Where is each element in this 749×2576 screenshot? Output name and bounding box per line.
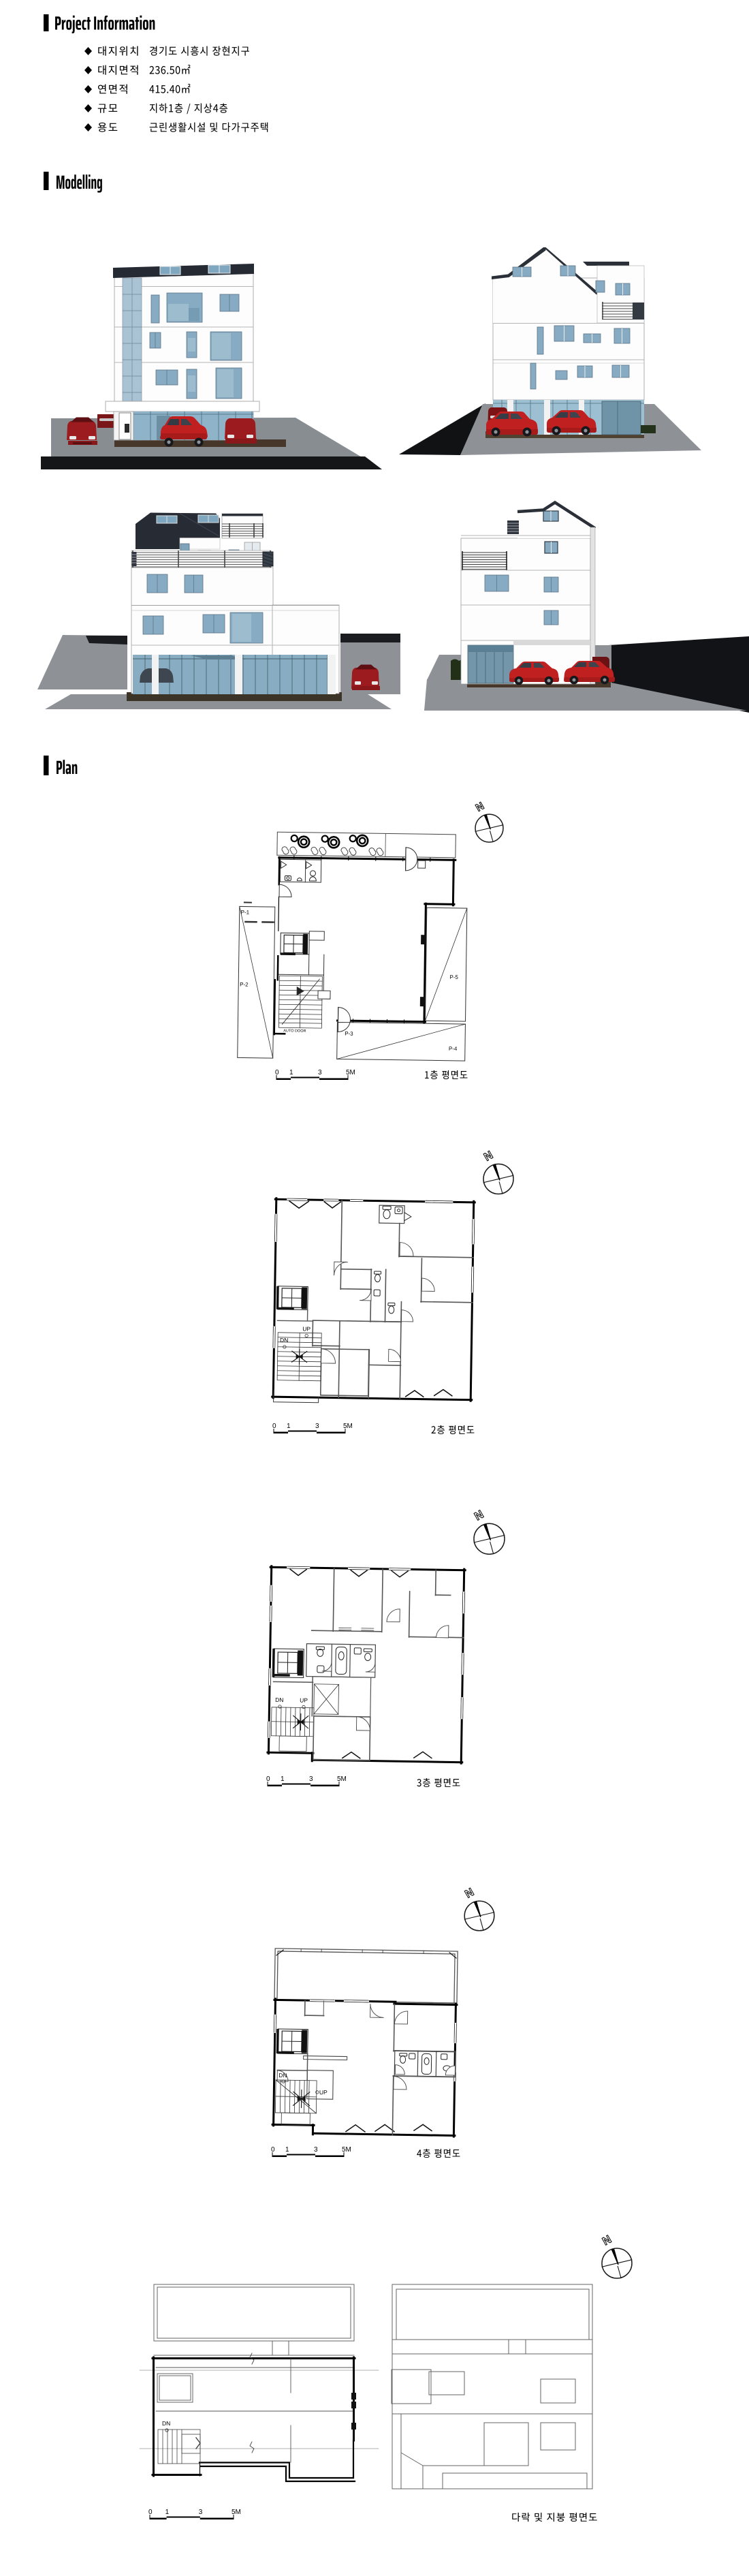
svg-text:P-4: P-4 bbox=[449, 1046, 458, 1052]
svg-text:N: N bbox=[482, 1149, 495, 1164]
svg-text:P-1: P-1 bbox=[241, 909, 250, 915]
svg-text:0: 0 bbox=[275, 1069, 279, 1076]
svg-text:3: 3 bbox=[318, 1069, 322, 1076]
svg-text:5M: 5M bbox=[337, 1775, 347, 1783]
svg-text:1: 1 bbox=[287, 1423, 291, 1430]
svg-text:N: N bbox=[472, 1508, 485, 1523]
svg-text:UP: UP bbox=[302, 1325, 310, 1332]
svg-text:DN: DN bbox=[278, 2072, 287, 2079]
svg-text:0: 0 bbox=[272, 1423, 276, 1430]
svg-text:DN: DN bbox=[162, 2420, 170, 2427]
svg-text:0: 0 bbox=[266, 1775, 270, 1783]
svg-text:1: 1 bbox=[289, 1069, 293, 1076]
svg-text:0: 0 bbox=[271, 2146, 275, 2154]
svg-text:3: 3 bbox=[314, 2146, 318, 2154]
svg-text:3: 3 bbox=[199, 2509, 203, 2516]
svg-text:3: 3 bbox=[309, 1775, 313, 1783]
svg-text:5M: 5M bbox=[232, 2509, 241, 2516]
svg-text:DN: DN bbox=[280, 1337, 288, 1344]
svg-text:1: 1 bbox=[165, 2509, 170, 2516]
svg-text:N: N bbox=[601, 2233, 613, 2248]
svg-text:UP: UP bbox=[319, 2089, 328, 2096]
svg-text:AUTO DOOR: AUTO DOOR bbox=[283, 1029, 306, 1033]
svg-text:N: N bbox=[474, 801, 486, 814]
svg-text:5M: 5M bbox=[343, 1423, 353, 1430]
svg-text:1: 1 bbox=[281, 1775, 285, 1783]
svg-text:P-3: P-3 bbox=[345, 1031, 353, 1037]
svg-text:5M: 5M bbox=[342, 2146, 351, 2154]
svg-text:5M: 5M bbox=[346, 1069, 355, 1076]
svg-text:0: 0 bbox=[148, 2509, 153, 2516]
svg-text:N: N bbox=[463, 1886, 476, 1900]
svg-text:DN: DN bbox=[275, 1696, 283, 1703]
svg-text:3: 3 bbox=[315, 1423, 319, 1430]
svg-text:P-2: P-2 bbox=[240, 981, 249, 987]
svg-text:UP: UP bbox=[300, 1696, 308, 1703]
svg-text:P-5: P-5 bbox=[449, 974, 458, 980]
svg-text:1: 1 bbox=[285, 2146, 289, 2154]
